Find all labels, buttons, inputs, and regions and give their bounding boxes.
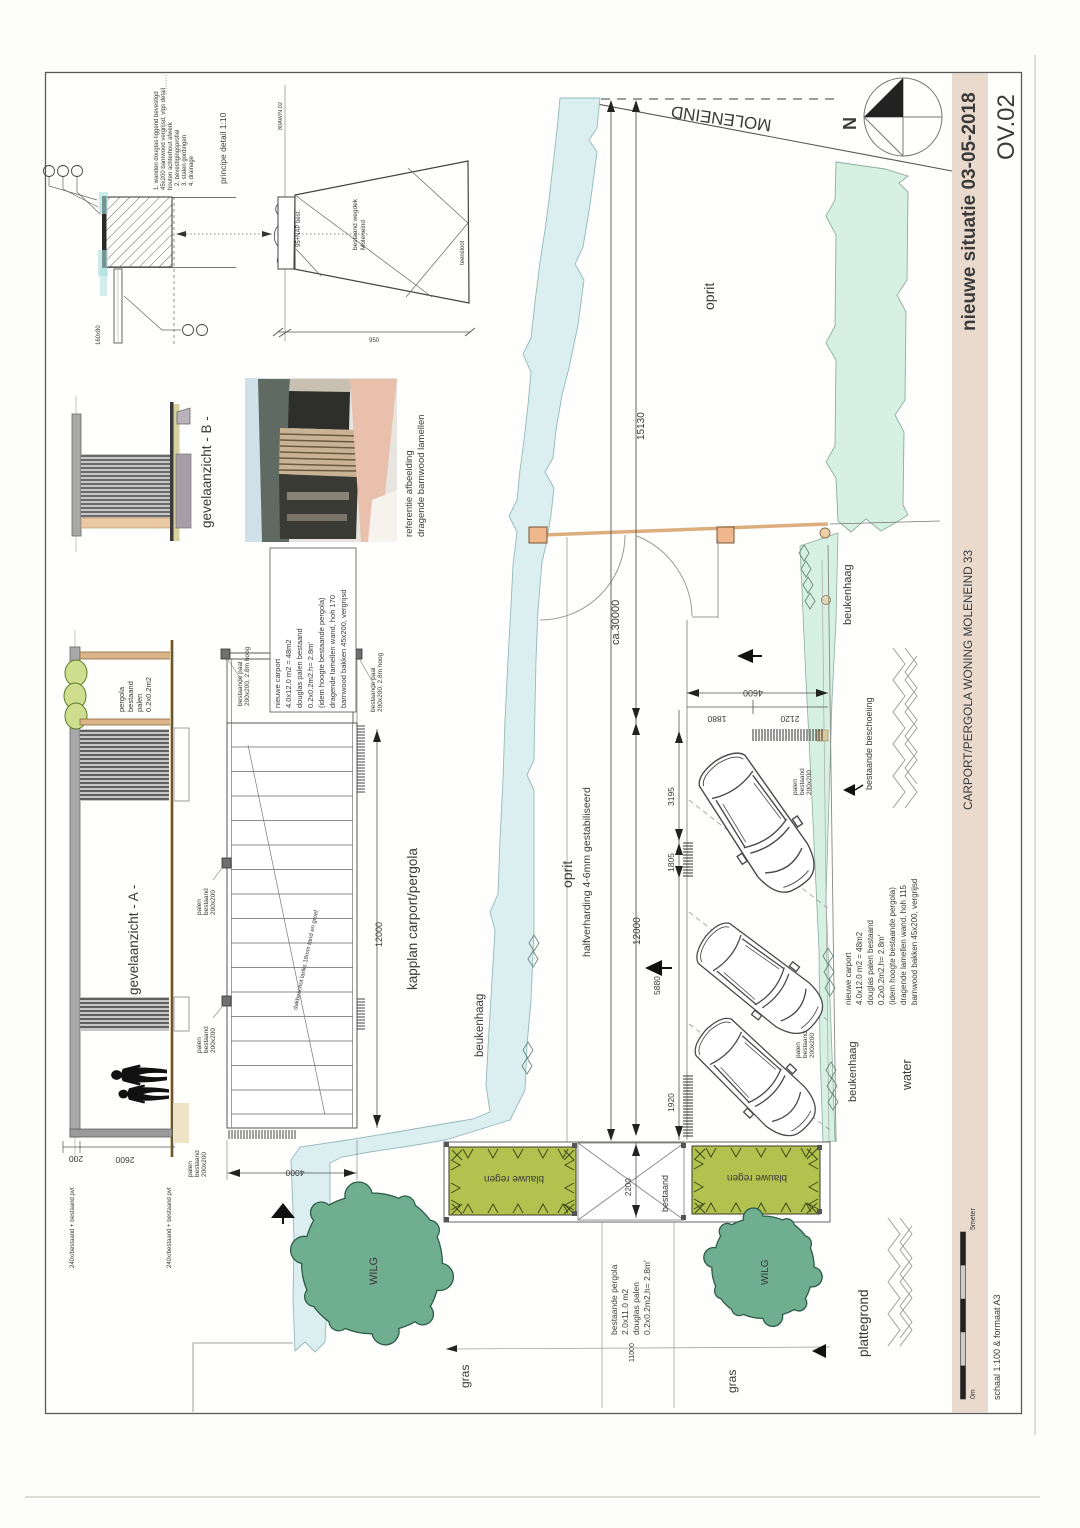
svg-text:dragende barnwood lamellen: dragende barnwood lamellen	[416, 414, 427, 537]
svg-text:houten achterhout afwerk: houten achterhout afwerk	[168, 121, 174, 190]
svg-text:1805: 1805	[666, 853, 676, 872]
svg-text:95+NAP best.: 95+NAP best.	[296, 210, 302, 247]
svg-text:teensloot: teensloot	[460, 240, 466, 265]
svg-text:200x200: 200x200	[809, 1033, 816, 1058]
svg-text:douglas palen bestaand: douglas palen bestaand	[866, 920, 875, 1005]
svg-text:5880: 5880	[652, 976, 662, 995]
svg-text:12000: 12000	[632, 917, 643, 945]
svg-text:oprit: oprit	[701, 283, 717, 310]
svg-text:200x200: 200x200	[201, 1152, 208, 1177]
svg-text:referentie afbeelding: referentie afbeelding	[404, 450, 415, 537]
svg-text:halfverharding 4-6mm gestabili: halfverharding 4-6mm gestabiliseerd	[581, 787, 593, 957]
svg-text:palen: palen	[196, 1037, 203, 1053]
svg-text:palen: palen	[196, 899, 203, 915]
svg-text:bestaand: bestaand	[194, 1150, 201, 1177]
svg-text:Moleneind: Moleneind	[360, 220, 367, 250]
svg-text:blauwe regen: blauwe regen	[484, 1173, 544, 1184]
svg-text:bestaande pergola: bestaande pergola	[609, 1264, 619, 1335]
svg-text:WILG: WILG	[760, 1259, 771, 1285]
svg-text:palen: palen	[135, 694, 144, 712]
svg-text:4. drainage: 4. drainage	[189, 155, 195, 186]
svg-text:2. bevestigingsprofiel: 2. bevestigingsprofiel	[175, 130, 181, 186]
svg-text:160x80: 160x80	[96, 325, 102, 345]
svg-text:0m: 0m	[970, 1389, 977, 1399]
svg-text:gevelaanzicht - A -: gevelaanzicht - A -	[126, 885, 141, 995]
svg-text:200x200: 200x200	[806, 770, 813, 795]
svg-text:bestaande paal: bestaande paal	[237, 661, 244, 706]
svg-text:douglas palen: douglas palen	[631, 1282, 641, 1335]
svg-text:gras: gras	[458, 1365, 472, 1388]
svg-text:beukenhaag: beukenhaag	[474, 994, 486, 1057]
svg-text:water: water	[900, 1059, 914, 1091]
svg-text:(idem hoogte bestaande pergola: (idem hoogte bestaande pergola)	[317, 597, 326, 708]
svg-text:1. wanden douglas liggend beve: 1. wanden douglas liggend bevestigd	[154, 91, 160, 190]
svg-text:palen: palen	[187, 1161, 194, 1177]
svg-text:2.0x11.0 m2: 2.0x11.0 m2	[620, 1289, 630, 1335]
svg-text:barnwood bakken 45x200, vergri: barnwood bakken 45x200, vergrijsd	[910, 879, 919, 1005]
svg-text:pergola: pergola	[117, 686, 126, 712]
svg-text:douglas palen bestaand: douglas palen bestaand	[295, 628, 304, 708]
svg-text:240x/bestaand + bestaand pvt: 240x/bestaand + bestaand pvt	[70, 1187, 76, 1268]
svg-text:dragende lamellen wand, hoh 17: dragende lamellen wand, hoh 170	[328, 595, 337, 708]
svg-text:OV.02: OV.02	[993, 94, 1020, 160]
svg-text:200x200: 200x200	[210, 890, 217, 915]
svg-text:2120: 2120	[780, 714, 799, 724]
svg-text:240x/bestaand + bestaand pvt: 240x/bestaand + bestaand pvt	[167, 1187, 173, 1268]
svg-text:gevelaanzicht - B -: gevelaanzicht - B -	[199, 416, 214, 528]
svg-text:0.2x0.2m2: 0.2x0.2m2	[144, 677, 153, 712]
svg-text:4000: 4000	[285, 1168, 304, 1178]
svg-text:1920: 1920	[666, 1093, 676, 1112]
svg-text:4.0x12.0 m2 = 48m2: 4.0x12.0 m2 = 48m2	[284, 639, 293, 708]
svg-text:bestaande beschoeiing: bestaande beschoeiing	[864, 697, 874, 790]
svg-text:3195: 3195	[666, 787, 676, 806]
svg-text:bestaand: bestaand	[203, 1026, 210, 1053]
svg-text:200x200, 2.8m hoog: 200x200, 2.8m hoog	[244, 646, 251, 706]
svg-text:WILG: WILG	[368, 1257, 380, 1285]
svg-text:0.2x0.2m2.h= 2.8m': 0.2x0.2m2.h= 2.8m'	[877, 934, 886, 1005]
svg-text:nieuwe situatie 03-05-2018: nieuwe situatie 03-05-2018	[959, 92, 980, 331]
svg-text:200x200, 2.8m hoog: 200x200, 2.8m hoog	[377, 652, 384, 712]
svg-text:950: 950	[369, 338, 380, 344]
svg-text:3. stalen gordingen: 3. stalen gordingen	[182, 135, 188, 186]
svg-text:15130: 15130	[636, 412, 647, 440]
svg-text:nieuwe carport: nieuwe carport	[273, 658, 282, 708]
svg-text:11000: 11000	[629, 1343, 636, 1362]
svg-text:beukenhaag: beukenhaag	[847, 1041, 859, 1102]
svg-text:bestaand wegdek: bestaand wegdek	[352, 198, 359, 250]
svg-text:ca.30000: ca.30000	[610, 600, 622, 645]
svg-text:4.0x12.0 m2 = 48m2: 4.0x12.0 m2 = 48m2	[855, 931, 864, 1005]
svg-text:0.2x0.2m2.h= 2.8m': 0.2x0.2m2.h= 2.8m'	[306, 642, 315, 708]
svg-text:4600: 4600	[743, 688, 763, 698]
svg-text:2600: 2600	[115, 1155, 134, 1165]
svg-text:palen: palen	[792, 779, 799, 795]
svg-text:bestaand: bestaand	[660, 1175, 670, 1212]
svg-text:barnwood bakken 45x200, vergri: barnwood bakken 45x200, vergrijsd	[339, 590, 348, 708]
svg-text:plattegrond: plattegrond	[856, 1289, 871, 1357]
svg-text:(idem hoogte bestaande pergola: (idem hoogte bestaande pergola)	[888, 887, 897, 1005]
svg-text:bestaand: bestaand	[799, 768, 806, 795]
svg-text:gras: gras	[725, 1370, 739, 1393]
svg-text:bestaand: bestaand	[126, 681, 135, 712]
svg-text:5meter: 5meter	[970, 1208, 977, 1230]
svg-text:schaal 1:100 & formaat A3: schaal 1:100 & formaat A3	[992, 1294, 1002, 1400]
svg-text:200x200: 200x200	[210, 1028, 217, 1053]
svg-text:80AW/N.02: 80AW/N.02	[278, 102, 284, 130]
svg-text:oprit: oprit	[559, 861, 575, 888]
svg-text:dragende lamellen wand, hoh 11: dragende lamellen wand, hoh 115	[899, 885, 908, 1005]
svg-text:200: 200	[69, 1154, 83, 1164]
svg-text:1880: 1880	[707, 714, 726, 724]
svg-text:12000: 12000	[374, 922, 384, 947]
svg-text:beukenhaag: beukenhaag	[842, 564, 854, 625]
svg-text:2200: 2200	[624, 1178, 633, 1196]
svg-text:bestaand: bestaand	[203, 888, 210, 915]
svg-text:0.2x0.2m2,h= 2.8m': 0.2x0.2m2,h= 2.8m'	[642, 1260, 652, 1335]
svg-text:45x200 barnwood vergrijsd, vlg: 45x200 barnwood vergrijsd, vlgs detail	[161, 88, 167, 190]
svg-text:N: N	[840, 117, 860, 130]
svg-text:blauwe regen: blauwe regen	[727, 1172, 787, 1183]
svg-text:principe detail 1:10: principe detail 1:10	[218, 112, 228, 184]
svg-text:bestaand: bestaand	[802, 1031, 809, 1058]
svg-text:bestaande paal: bestaande paal	[370, 667, 377, 712]
svg-text:nieuwe carport: nieuwe carport	[844, 952, 853, 1005]
svg-text:palen: palen	[795, 1042, 802, 1058]
svg-text:kapplan carport/pergola: kapplan carport/pergola	[405, 848, 420, 990]
svg-text:CARPORT/PERGOLA WONING MOLENEI: CARPORT/PERGOLA WONING MOLENEIND 33	[961, 550, 975, 810]
